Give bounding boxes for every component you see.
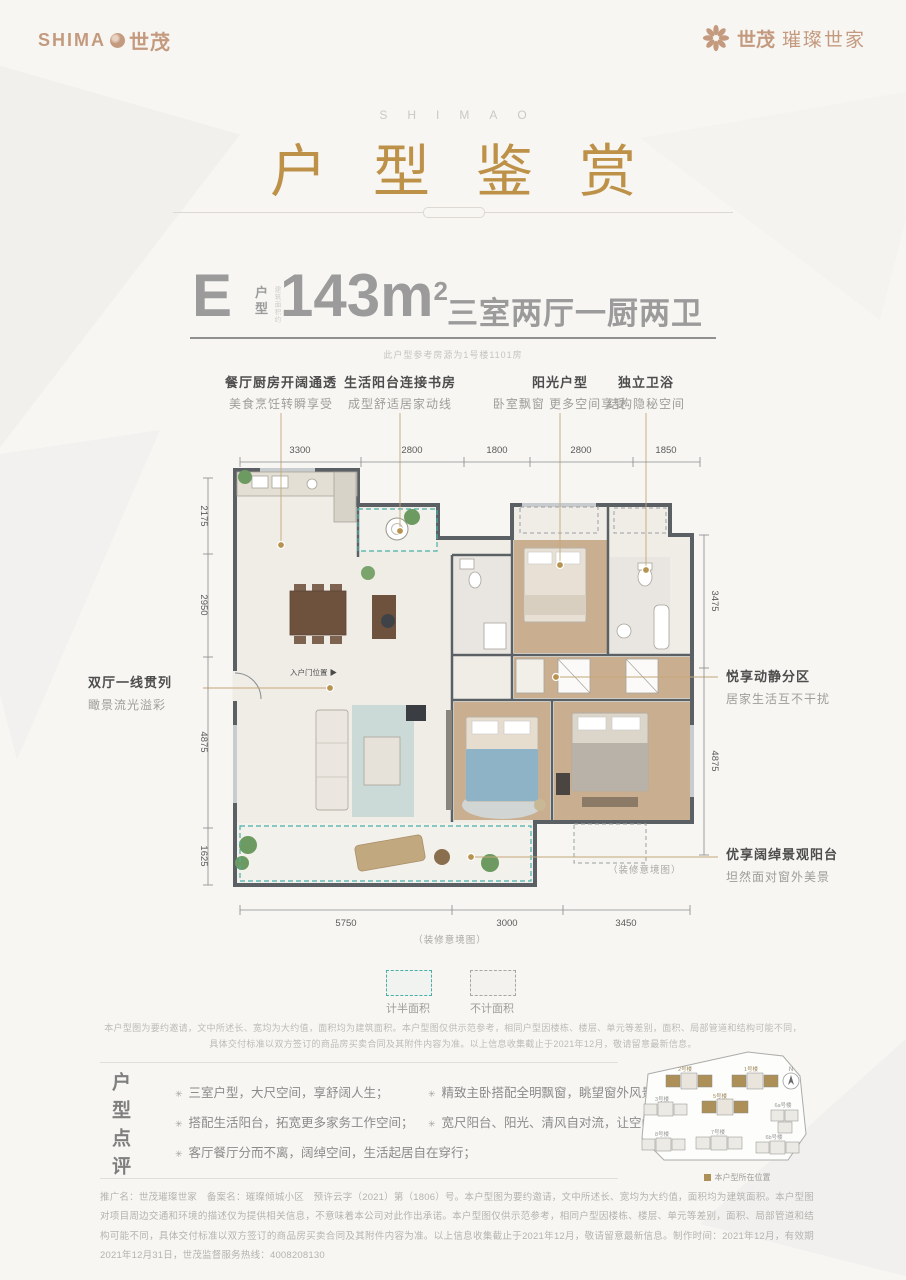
render-note-right: （装修意境图） — [608, 862, 682, 876]
callout-zoning: 悦享动静分区 居家生活互不干扰 — [726, 666, 830, 707]
callout-balcony: 优享阔绰景观阳台 坦然面对窗外美景 — [726, 844, 838, 885]
render-note-bottom: （装修意境图） — [385, 932, 515, 946]
svg-text:3300: 3300 — [289, 445, 310, 456]
svg-text:4875: 4875 — [709, 750, 720, 771]
area-superscript: 2 — [433, 276, 447, 306]
project-name: 璀璨世家 — [782, 25, 866, 52]
legend-half-area-label: 计半面积 — [373, 1000, 443, 1016]
review-bullet: ✳客厅餐厅分而不离，阔绰空间，生活起居自在穿行； — [175, 1142, 476, 1161]
review-rule-bottom — [100, 1178, 618, 1179]
disclaimer-line-1: 本户型图为要约邀请，文中所述长、宽均为大约值，面积均为建筑面积。本户型图仅供示范… — [90, 1021, 816, 1034]
site-plan: N 2号楼 1号楼 3号楼 5号楼 — [628, 1046, 818, 1172]
dim-labels-left: 2175 2950 4875 1625 — [198, 505, 209, 866]
dim-line-top — [240, 457, 700, 467]
flower-icon — [702, 24, 730, 52]
title-eyebrow: SHIMAO — [0, 108, 906, 122]
bullet-icon: ✳ — [175, 1089, 183, 1099]
poster-canvas: SHIMA世茂 世茂 璀璨世家 SHIMAO 户型鉴赏 E 户 型 建筑面积约 … — [0, 0, 906, 1280]
svg-text:7号楼: 7号楼 — [711, 1128, 726, 1136]
svg-text:1号楼: 1号楼 — [744, 1065, 759, 1073]
svg-text:4875: 4875 — [198, 731, 209, 752]
svg-text:2号楼: 2号楼 — [678, 1065, 693, 1073]
dim-labels-right: 3475 4875 — [709, 590, 720, 771]
siteplan-legend: 本户型所在位置 — [652, 1172, 822, 1183]
floor-small-terrace — [574, 824, 646, 864]
shimao-logo-text-cn: 世茂 — [129, 26, 171, 55]
bullet-icon: ✳ — [175, 1149, 183, 1159]
globe-icon — [110, 33, 125, 48]
bullet-icon: ✳ — [175, 1119, 183, 1129]
reference-note: 此户型参考房源为1号楼1101房 — [190, 348, 716, 361]
svg-text:8号楼: 8号楼 — [655, 1130, 670, 1138]
legend-excluded-area-label: 不计面积 — [457, 1000, 527, 1016]
svg-text:2800: 2800 — [570, 445, 591, 456]
svg-text:6b号楼: 6b号楼 — [765, 1133, 783, 1141]
svg-text:2950: 2950 — [198, 594, 209, 615]
dim-labels-top: 33002800 18002800 1850 — [289, 445, 676, 456]
review-bullet: ✳搭配生活阳台，拓宽更多家务工作空间； — [175, 1112, 414, 1131]
svg-text:5750: 5750 — [335, 918, 356, 929]
callout-living: 双厅一线贯列 瞰景流光溢彩 — [88, 672, 172, 713]
unit-type-label: 户 型 — [255, 285, 268, 318]
legend-half-area-box — [386, 970, 432, 996]
entry-door-label: 入户门位置 ▶ — [290, 667, 338, 677]
dim-line-left — [203, 478, 213, 885]
svg-text:1850: 1850 — [655, 445, 676, 456]
highlight-square-icon — [704, 1174, 711, 1181]
svg-text:6a号楼: 6a号楼 — [774, 1101, 792, 1109]
shimao-logo-text-en: SHIMA — [38, 30, 106, 51]
unit-type-letter: E — [192, 266, 232, 326]
review-bullet: ✳三室户型，大尺空间，享舒阔人生； — [175, 1082, 389, 1101]
svg-text:2175: 2175 — [198, 505, 209, 526]
compass-label: N — [789, 1067, 793, 1073]
unit-area: 143m2 — [280, 266, 448, 326]
unit-rooms: 三室两厅一厨两卫 — [447, 288, 703, 333]
svg-text:2800: 2800 — [401, 445, 422, 456]
brand-logo: 世茂 璀璨世家 — [702, 24, 866, 52]
svg-text:3450: 3450 — [615, 918, 636, 929]
bullet-icon: ✳ — [428, 1089, 436, 1099]
dim-labels-bottom: 57503000 3450 — [335, 918, 636, 929]
svg-text:1625: 1625 — [198, 845, 209, 866]
dim-line-bottom — [240, 905, 690, 915]
legend-excluded-area-box — [470, 970, 516, 996]
spec-divider — [190, 337, 716, 339]
dim-line-right — [699, 535, 709, 855]
title-divider-capsule — [423, 207, 485, 218]
review-heading: 户型点评 — [106, 1072, 133, 1184]
shimao-logo: SHIMA世茂 — [38, 26, 171, 55]
svg-text:3000: 3000 — [496, 918, 517, 929]
footer-disclaimer: 推广名：世茂璀璨世家 备案名：璀璨倾城小区 预许云字（2021）第（1806）号… — [100, 1188, 814, 1266]
svg-text:3475: 3475 — [709, 590, 720, 611]
svg-text:1800: 1800 — [486, 445, 507, 456]
review-rule-top — [100, 1062, 618, 1063]
bullet-icon: ✳ — [428, 1119, 436, 1129]
brand-name: 世茂 — [737, 25, 775, 52]
page-title: 户型鉴赏 — [0, 126, 906, 208]
